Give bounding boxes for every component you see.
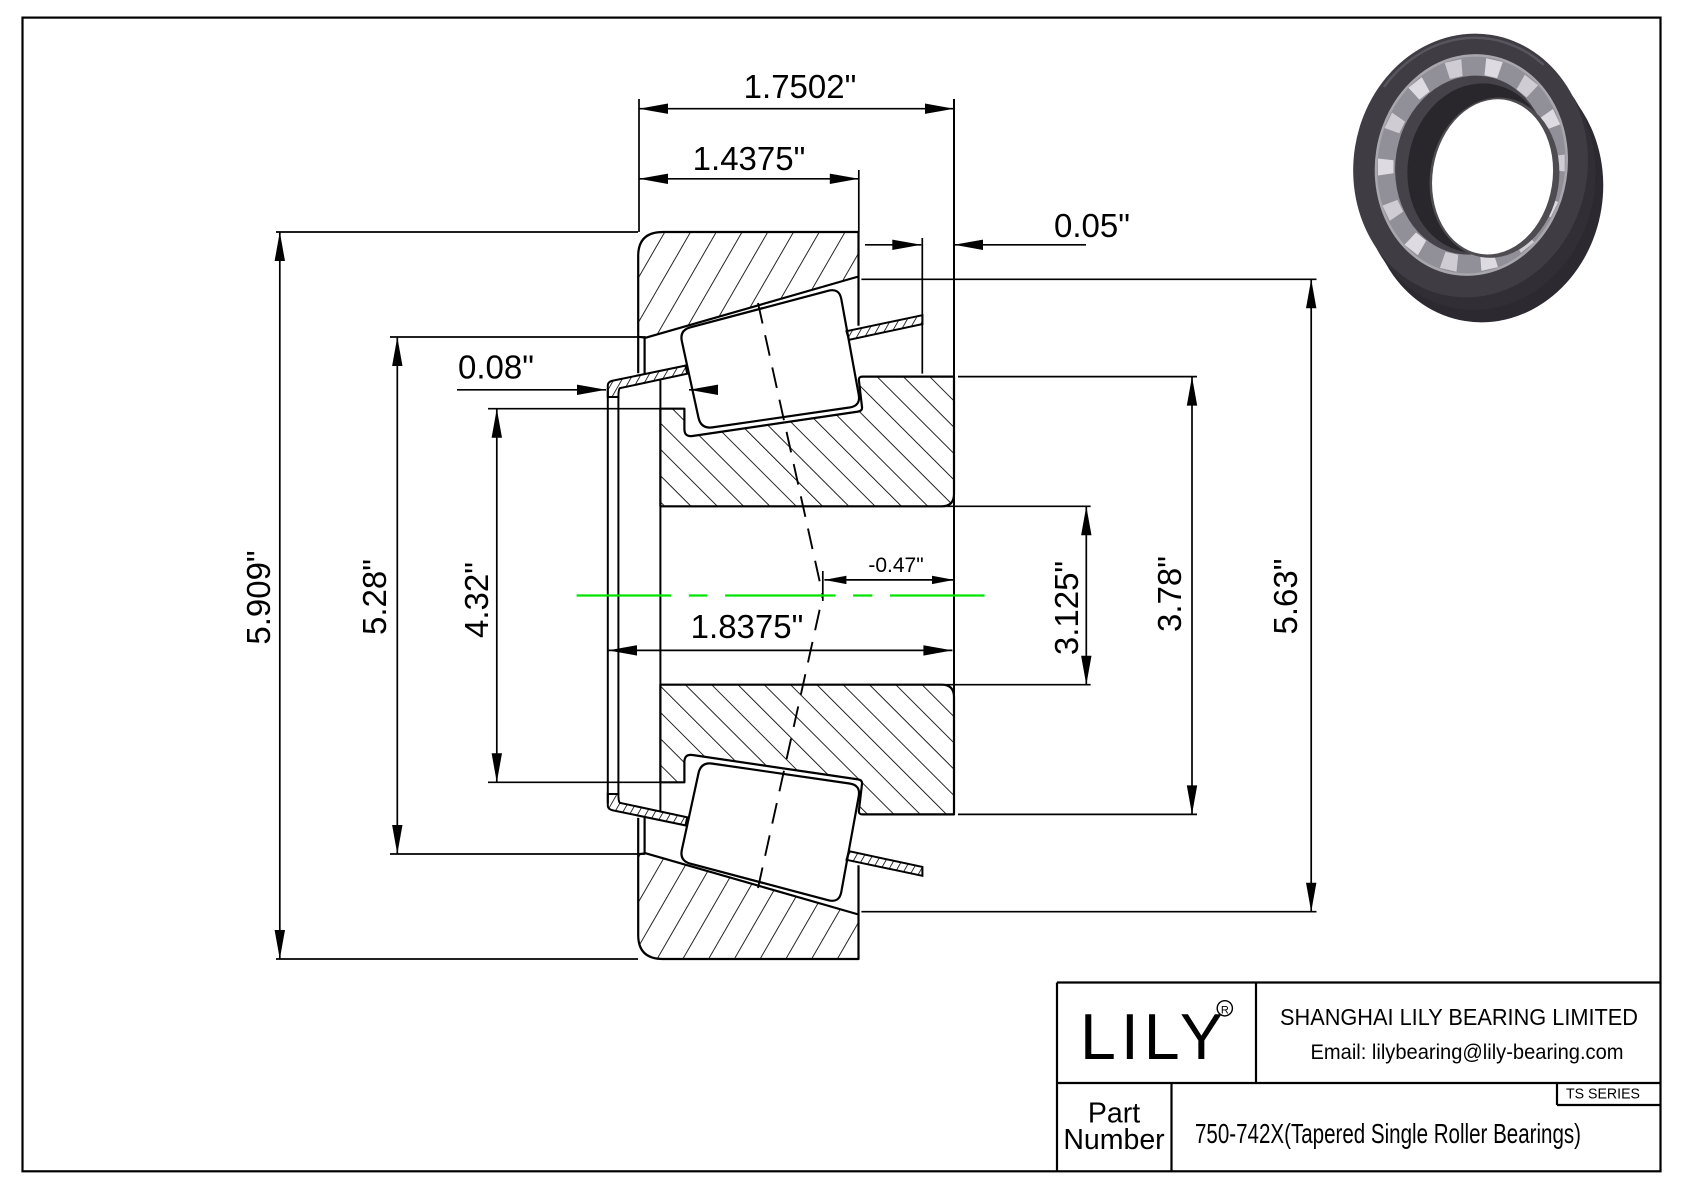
svg-text:4.32": 4.32" [458, 562, 495, 638]
svg-text:R: R [1221, 1004, 1229, 1016]
svg-text:1.4375": 1.4375" [693, 140, 806, 177]
svg-text:5.28": 5.28" [356, 559, 393, 635]
svg-text:5.63": 5.63" [1267, 559, 1304, 635]
svg-text:0.05": 0.05" [1054, 207, 1130, 244]
svg-text:1.7502": 1.7502" [744, 68, 857, 105]
svg-text:Number: Number [1063, 1124, 1165, 1156]
svg-text:5.909": 5.909" [240, 550, 277, 644]
svg-text:SHANGHAI LILY BEARING LIMITED: SHANGHAI LILY BEARING LIMITED [1280, 1004, 1638, 1030]
svg-text:TS SERIES: TS SERIES [1566, 1087, 1640, 1103]
svg-text:1.8375": 1.8375" [691, 608, 804, 645]
svg-text:LILY: LILY [1080, 1001, 1228, 1073]
svg-text:750-742X(Tapered Single Roller: 750-742X(Tapered Single Roller Bearings) [1195, 1118, 1581, 1149]
svg-text:0.08": 0.08" [458, 348, 534, 385]
svg-text:-0.47": -0.47" [868, 554, 923, 577]
svg-text:3.125": 3.125" [1048, 561, 1085, 655]
svg-text:Email: lilybearing@lily-bearin: Email: lilybearing@lily-bearing.com [1311, 1041, 1624, 1064]
svg-text:3.78": 3.78" [1151, 556, 1188, 632]
